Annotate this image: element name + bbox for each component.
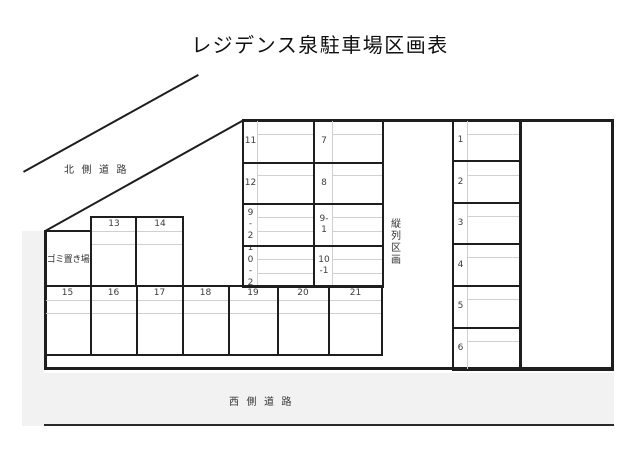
stall-13-label: 13 (92, 218, 136, 231)
building-block (519, 119, 614, 371)
grid-line (333, 273, 382, 274)
stall-17-label: 17 (138, 287, 181, 300)
stall-8-label: 8 (316, 164, 332, 203)
grid-line (258, 134, 313, 135)
tandem-section-label: 縦 列 区 画 (389, 219, 403, 267)
stall-2-label: 2 (454, 163, 467, 202)
grid-line (46, 313, 381, 314)
stall-1-label: 1 (454, 121, 467, 161)
grid-line (468, 216, 519, 217)
grid-line (467, 121, 468, 369)
stall-19-label: 19 (230, 287, 276, 300)
west-road-bottom-band (22, 373, 614, 426)
stall-10-1-label: 10 -1 (316, 247, 332, 285)
grid-line (468, 175, 519, 176)
middle-table-row-divider (244, 203, 382, 205)
grid-line (333, 217, 382, 218)
stall-18-label: 18 (184, 287, 227, 300)
west-road-label: 西側道路 (229, 393, 299, 408)
stall-6-label: 6 (454, 329, 467, 368)
grid-line (46, 300, 381, 301)
road-outer-edge-line (44, 424, 614, 426)
grid-line (333, 231, 382, 232)
parking-lot-diagram: レジデンス泉駐車場区画表 北側道路 西側道路 11 12 9 - 2 1 0 -… (0, 0, 640, 450)
grid-line (258, 231, 313, 232)
garbage-area-label: ゴミ置き場 (44, 230, 92, 287)
grid-line (92, 231, 182, 232)
stall-15-label: 15 (46, 287, 89, 300)
middle-table-row-divider (244, 162, 382, 164)
grid-line (468, 299, 519, 300)
north-road-label: 北側道路 (64, 161, 134, 176)
stall-16-label: 16 (92, 287, 135, 300)
middle-table-row-divider (244, 245, 382, 247)
grid-line (468, 341, 519, 342)
stall-12-label: 12 (244, 164, 257, 203)
grid-line (333, 134, 382, 135)
stall-9-2-label: 9 - 2 (244, 205, 257, 245)
grid-line (258, 217, 313, 218)
grid-line (258, 175, 313, 176)
grid-line (333, 175, 382, 176)
stall-7-label: 7 (316, 121, 332, 162)
stall-10-2-label: 1 0 - 2 (244, 247, 257, 285)
stall-9-1-label: 9- 1 (316, 205, 332, 245)
stall-14-label: 14 (138, 218, 182, 231)
grid-line (468, 257, 519, 258)
grid-line (92, 244, 182, 245)
stall-20-label: 20 (279, 287, 327, 300)
stall-4-label: 4 (454, 246, 467, 285)
grid-line (258, 259, 313, 260)
stall-21-label: 21 (330, 287, 381, 300)
grid-line (468, 134, 519, 135)
page-title: レジデンス泉駐車場区画表 (0, 29, 640, 58)
grid-line (333, 259, 382, 260)
grid-line (258, 273, 313, 274)
stall-3-label: 3 (454, 204, 467, 244)
stall-5-label: 5 (454, 287, 467, 327)
stall-11-label: 11 (244, 121, 257, 162)
